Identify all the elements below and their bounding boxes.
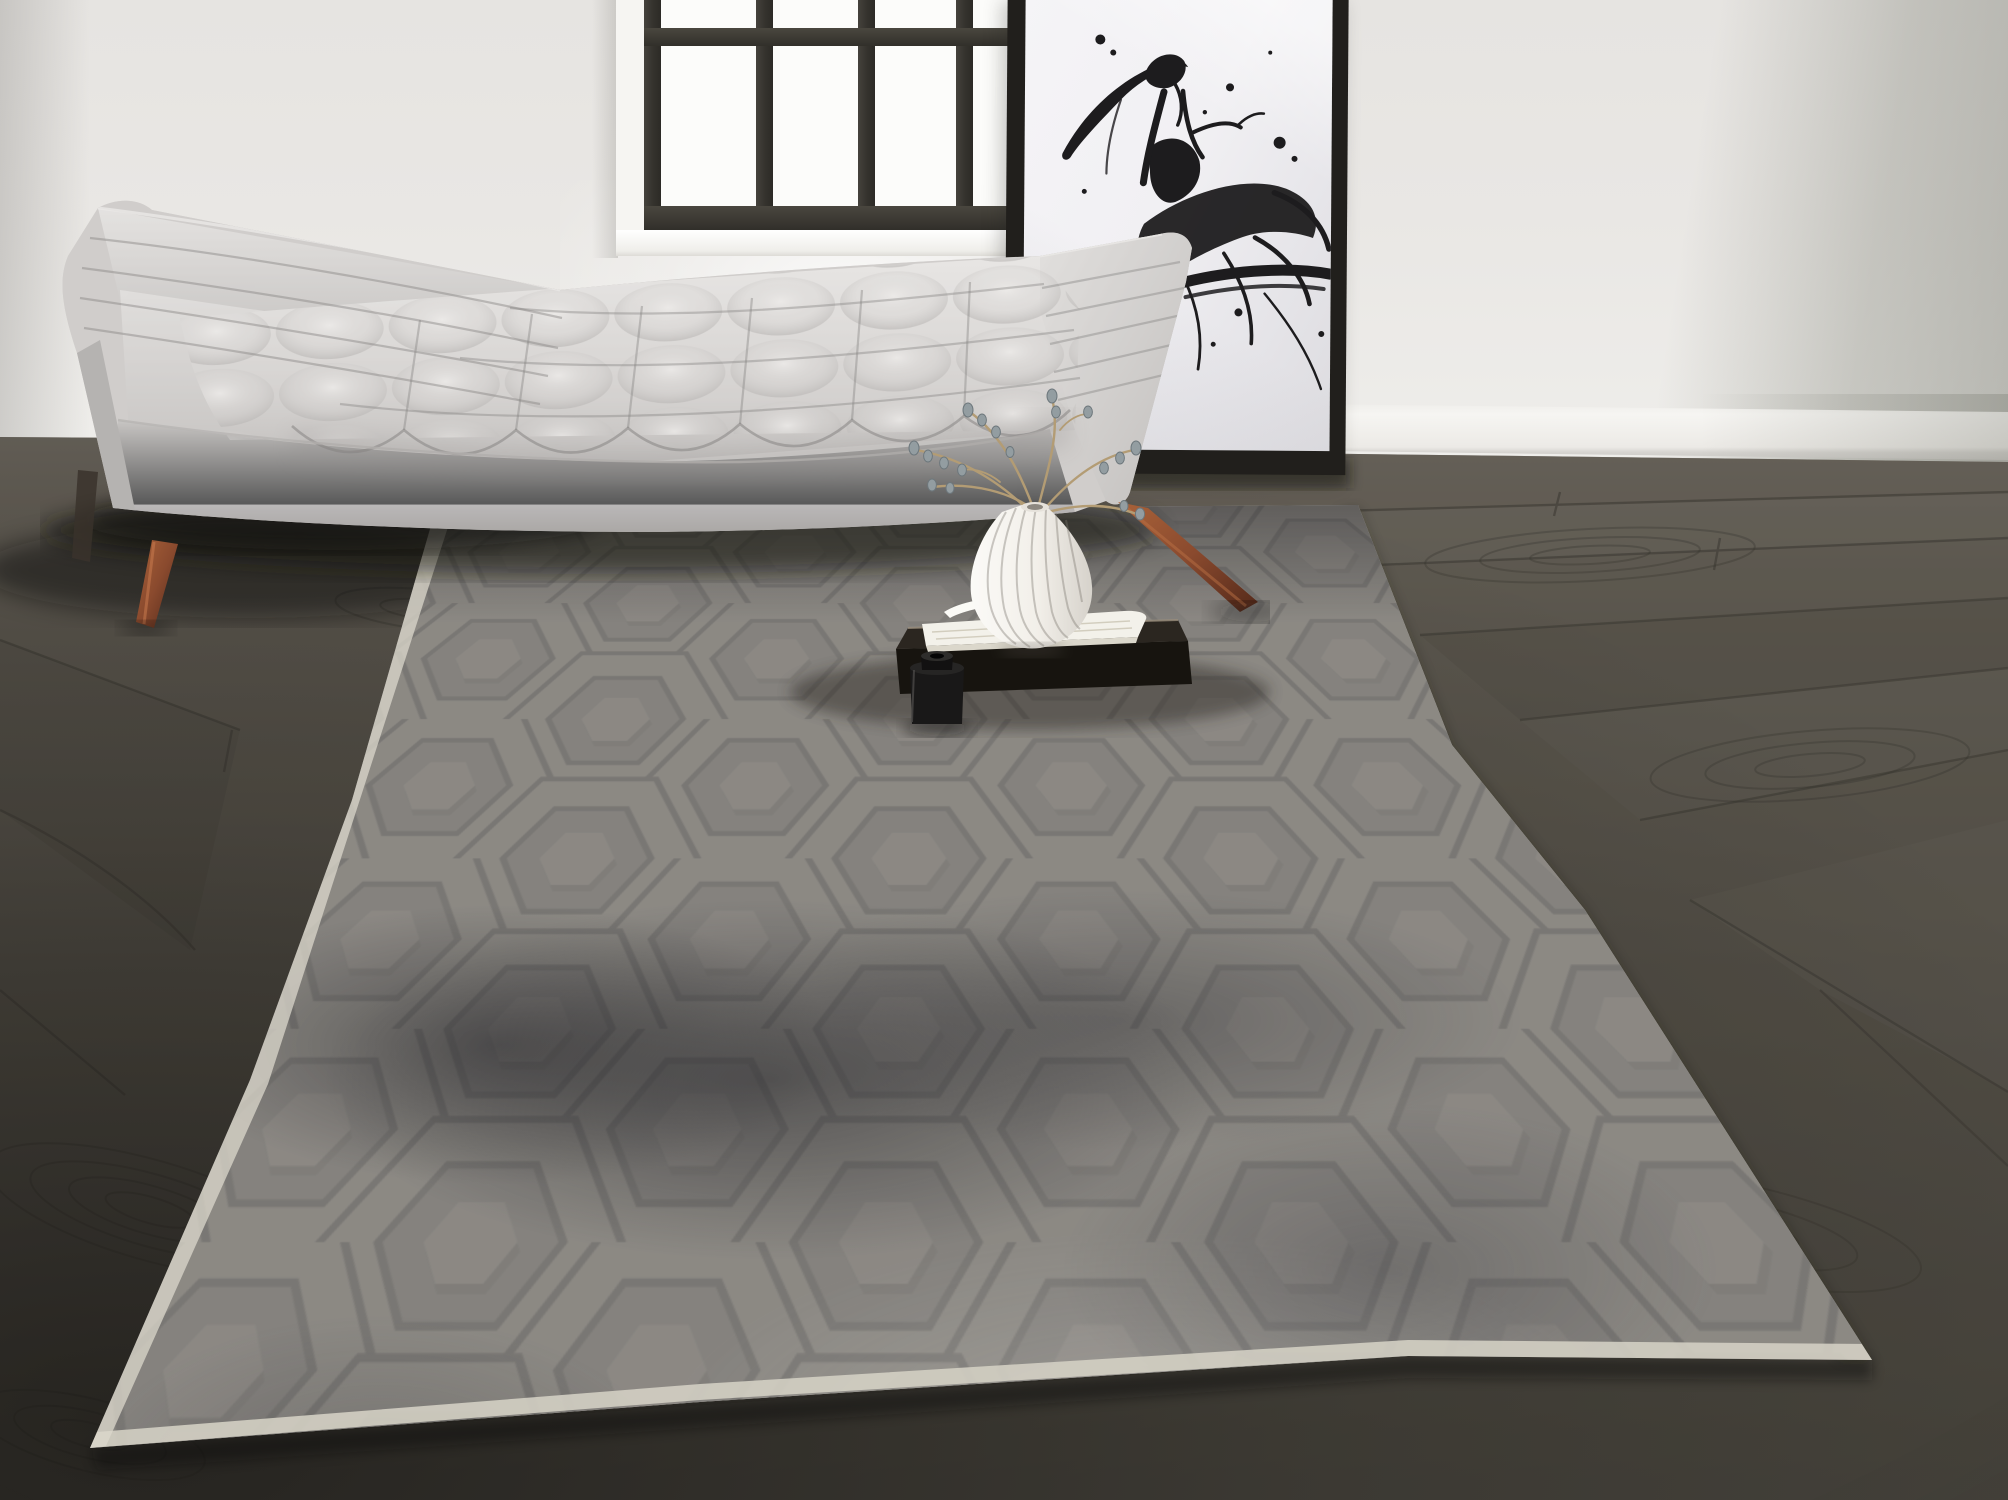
vase-still-life xyxy=(700,360,1300,760)
window-rail-icon xyxy=(644,28,1018,46)
sprig-buds xyxy=(909,389,1145,520)
dried-sprigs xyxy=(916,398,1142,516)
room-photo xyxy=(0,0,2008,1500)
